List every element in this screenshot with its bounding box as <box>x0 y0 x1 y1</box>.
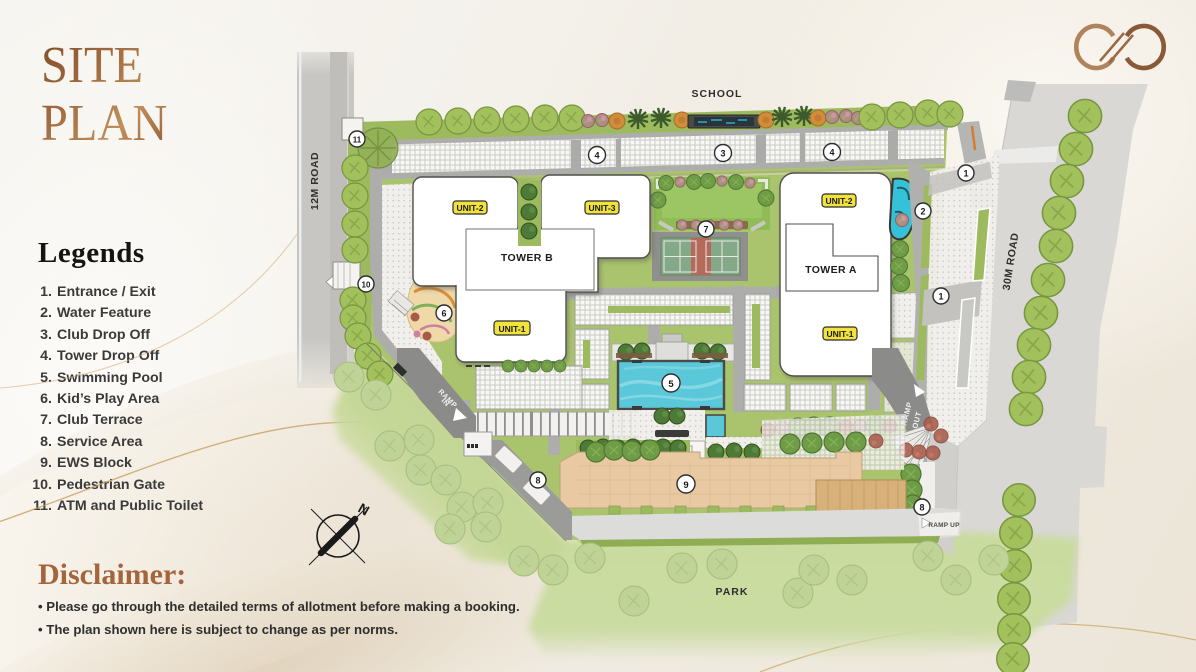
svg-text:3: 3 <box>720 149 725 159</box>
svg-text:UNIT-2: UNIT-2 <box>826 196 853 206</box>
svg-text:SCHOOL: SCHOOL <box>692 88 743 100</box>
svg-text:UNIT-1: UNIT-1 <box>827 329 854 339</box>
svg-text:UNIT-2: UNIT-2 <box>457 203 484 213</box>
svg-text:TOWER B: TOWER B <box>501 252 553 264</box>
svg-text:5: 5 <box>668 379 674 390</box>
svg-text:2: 2 <box>920 207 925 217</box>
svg-text:RAMP UP: RAMP UP <box>928 522 960 529</box>
svg-text:PARK: PARK <box>716 586 749 598</box>
svg-text:TOWER A: TOWER A <box>805 264 857 276</box>
svg-text:1: 1 <box>963 169 968 179</box>
svg-text:4: 4 <box>594 151 599 161</box>
svg-text:9: 9 <box>683 480 688 491</box>
svg-text:11: 11 <box>353 136 362 145</box>
svg-text:7: 7 <box>703 225 708 235</box>
svg-text:UNIT-1: UNIT-1 <box>499 324 526 334</box>
svg-text:4: 4 <box>829 148 834 158</box>
svg-text:6: 6 <box>441 309 446 319</box>
svg-text:UNIT-3: UNIT-3 <box>589 203 616 213</box>
svg-text:12M ROAD: 12M ROAD <box>309 152 321 210</box>
svg-text:8: 8 <box>919 503 924 513</box>
svg-text:8: 8 <box>535 476 540 486</box>
svg-text:1: 1 <box>938 292 943 302</box>
svg-text:10: 10 <box>362 281 371 290</box>
